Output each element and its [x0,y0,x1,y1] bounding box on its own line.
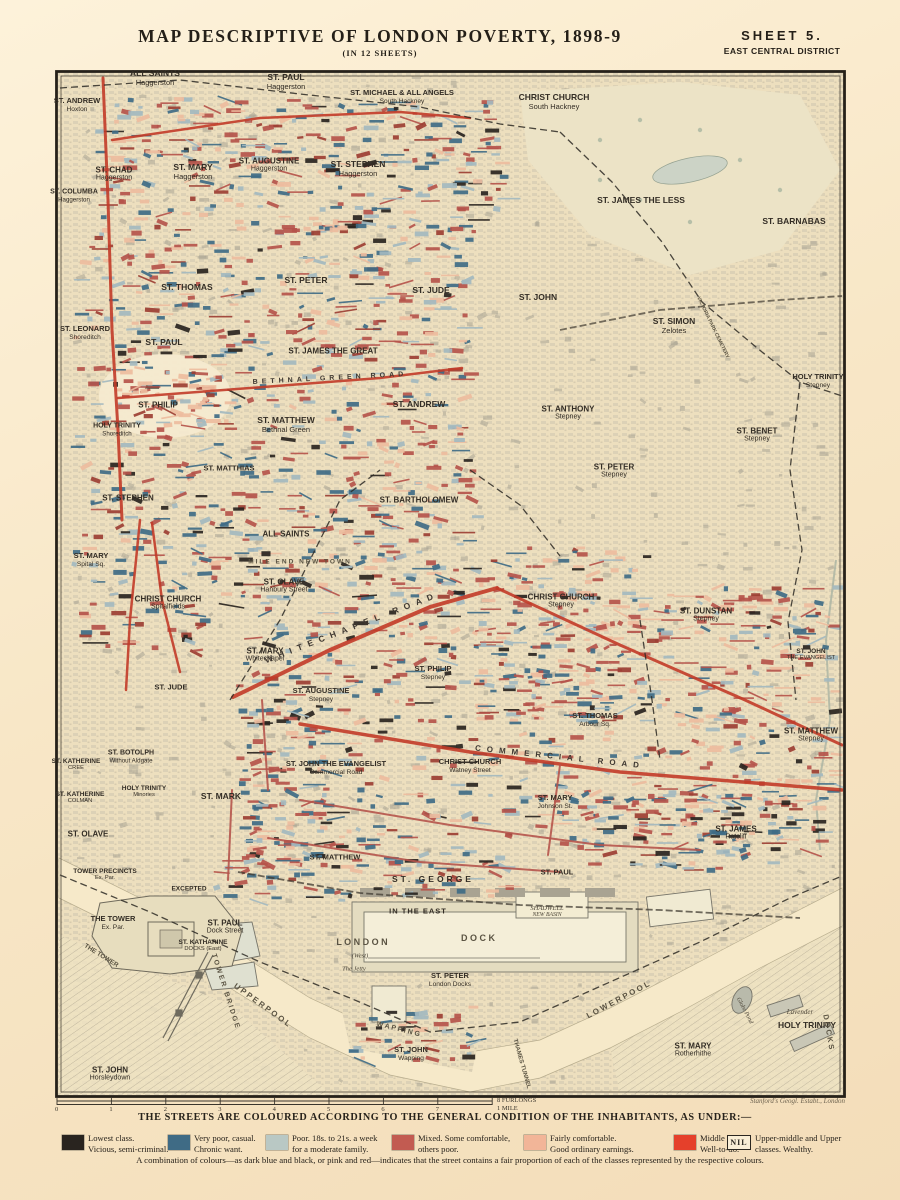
legend-entry: Fairly comfortable.Good ordinary earning… [524,1133,634,1154]
legend-swatch [524,1135,546,1150]
legend-footnote: A combination of colours—as dark blue an… [0,1155,900,1165]
booth-poverty-map-page: MAP DESCRIPTIVE OF LONDON POVERTY, 1898-… [0,0,900,1200]
legend-swatch [266,1135,288,1150]
legend-swatch [392,1135,414,1150]
imprint: Stanford's Geogl. Estabt., London [750,1097,845,1105]
legend-swatch [62,1135,84,1150]
tower-of-london [92,896,242,974]
legend-entry: Poor. 18s. to 21s. a weekfor a moderate … [266,1133,377,1154]
legend-entry: Lowest class.Vicious, semi-criminal. [62,1133,168,1154]
map-art [0,0,900,1200]
legend-label: Very poor, casual.Chronic want. [194,1133,256,1154]
legend-swatch [674,1135,696,1150]
legend-label: Lowest class.Vicious, semi-criminal. [88,1133,168,1154]
legend-swatch [168,1135,190,1150]
legend-nil-box: NIL [727,1135,751,1150]
legend-label: Poor. 18s. to 21s. a weekfor a moderate … [292,1133,377,1154]
legend-label: Upper-middle and Upperclasses. Wealthy. [755,1133,841,1154]
legend-label: Mixed. Some comfortable,others poor. [418,1133,510,1154]
legend-entry: Very poor, casual.Chronic want. [168,1133,256,1154]
scale-bar [57,1098,492,1105]
legend-heading: THE STREETS ARE COLOURED ACCORDING TO TH… [0,1112,890,1123]
legend-entry: Mixed. Some comfortable,others poor. [392,1133,510,1154]
legend-entry: NILUpper-middle and Upperclasses. Wealth… [727,1133,841,1154]
legend-label: Fairly comfortable.Good ordinary earning… [550,1133,634,1154]
